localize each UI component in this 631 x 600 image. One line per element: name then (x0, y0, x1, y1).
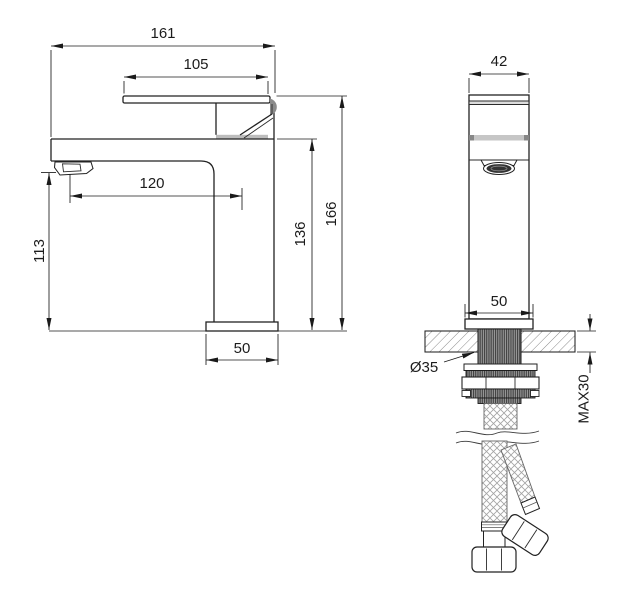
dim-label-50-side: 50 (234, 340, 251, 357)
dim-label-136: 136 (292, 221, 309, 246)
dimension-max-deck-thickness: MAX30 (575, 314, 596, 424)
shadow-cap-left (469, 135, 474, 141)
handle-base-shadow (469, 135, 529, 141)
faucet-outline-side (51, 103, 274, 322)
dimension-total-width: 161 (51, 25, 275, 137)
dimension-body-width: 42 (469, 53, 529, 93)
nut-tab-right (531, 391, 540, 397)
dim-label-166: 166 (323, 201, 340, 226)
dim-label-42: 42 (491, 53, 508, 70)
side-view: 161 105 120 113 136 (31, 25, 347, 365)
base-plate-front (465, 319, 533, 329)
handle-pivot-arc (270, 99, 277, 116)
mounting-nut (462, 377, 539, 389)
shadow-cap-right (524, 135, 529, 141)
dim-label-50-front: 50 (491, 293, 508, 310)
faucet-body-front (469, 95, 529, 319)
dimension-outlet-height: 113 (31, 173, 56, 331)
nut-tab-left (462, 391, 471, 397)
drawing-svg: 161 105 120 113 136 (0, 0, 631, 600)
dim-label-d35: Ø35 (410, 359, 438, 376)
dimension-spout-reach: 120 (70, 174, 242, 210)
handle-lever (123, 96, 277, 138)
dim-label-113: 113 (31, 239, 48, 263)
dim-label-max30: MAX30 (575, 374, 592, 423)
hose-bundle-top (484, 404, 517, 430)
dimension-base-width-side: 50 (206, 334, 278, 365)
aerator-front (481, 160, 517, 175)
aerator-side (55, 162, 94, 175)
dim-label-105: 105 (183, 56, 208, 73)
base-plate-side (206, 322, 278, 331)
front-view: 42 50 Ø35 MAX30 (410, 53, 596, 572)
aerator-screen (487, 164, 512, 173)
dim-label-120: 120 (139, 175, 164, 192)
hose-nut-left (472, 547, 516, 572)
faucet-dimension-drawing: 161 105 120 113 136 (0, 0, 631, 600)
dim-label-161: 161 (150, 25, 175, 42)
dimension-body-height: 136 (277, 139, 317, 330)
dimension-handle-length: 105 (124, 56, 268, 94)
washer (464, 364, 537, 371)
supply-hoses (455, 404, 550, 573)
